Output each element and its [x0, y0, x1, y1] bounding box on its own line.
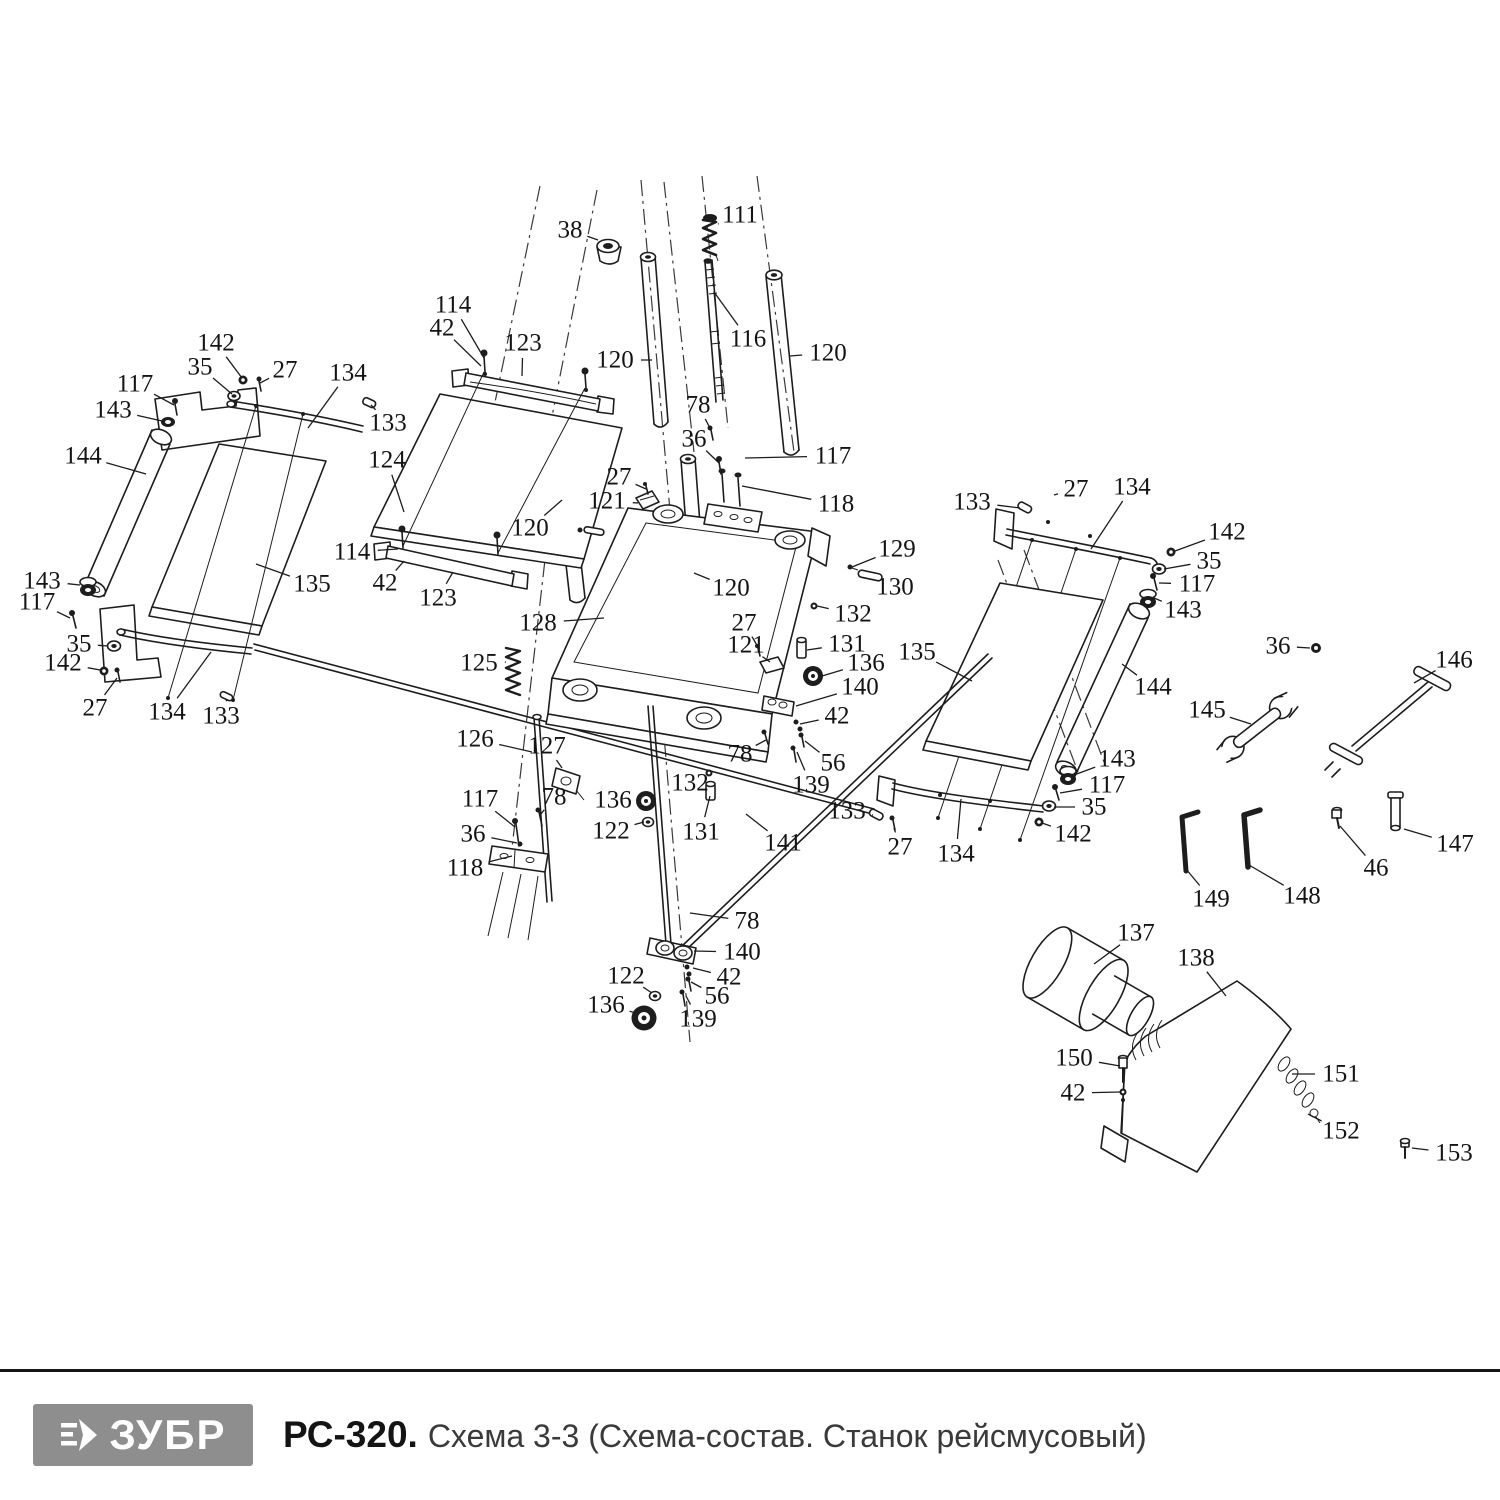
- part-label-126: 126: [456, 726, 494, 753]
- leader-line: [495, 811, 515, 827]
- part-label-27: 27: [273, 357, 298, 384]
- spring-125: [506, 648, 520, 695]
- part-label-121: 121: [727, 632, 765, 659]
- part-label-120: 120: [809, 340, 847, 367]
- leader-line: [1054, 494, 1058, 495]
- part-label-142: 142: [197, 330, 235, 357]
- leader-line: [106, 463, 146, 474]
- part-label-145: 145: [1188, 697, 1226, 724]
- part-label-134: 134: [148, 699, 186, 726]
- part-label-114: 114: [334, 539, 371, 566]
- leader-line: [522, 358, 523, 376]
- right-hardware-bottom: [1035, 767, 1077, 827]
- bracket-118-bottom: [488, 808, 548, 941]
- part-label-42: 42: [1061, 1080, 1086, 1107]
- part-label-135: 135: [293, 571, 331, 598]
- part-label-135: 135: [898, 639, 936, 666]
- part-label-27: 27: [607, 464, 632, 491]
- leader-line: [1099, 1062, 1120, 1066]
- part-label-36: 36: [461, 821, 486, 848]
- part-label-143: 143: [1098, 746, 1136, 773]
- leader-line: [461, 319, 484, 358]
- leader-line: [491, 838, 517, 843]
- part-label-143: 143: [1164, 597, 1202, 624]
- hex-key-149: [1182, 812, 1198, 871]
- part-label-149: 149: [1192, 886, 1230, 913]
- part-label-35: 35: [1082, 794, 1107, 821]
- part-label-120: 120: [511, 515, 549, 542]
- bearings-washers: [632, 791, 661, 1031]
- leader-line: [1060, 789, 1082, 793]
- leader-line: [694, 951, 716, 952]
- exploded-parts-diagram: 3811111442123120116120783611711812427121…: [0, 0, 1500, 1500]
- part-label-142: 142: [1208, 519, 1246, 546]
- part-label-117: 117: [1179, 571, 1216, 598]
- leader-line: [1207, 972, 1226, 996]
- part-label-78: 78: [686, 392, 711, 419]
- leader-line: [454, 340, 481, 366]
- part-label-120: 120: [596, 347, 634, 374]
- part-label-133: 133: [953, 489, 991, 516]
- part-label-146: 146: [1435, 647, 1473, 674]
- leader-line: [1249, 865, 1284, 885]
- part-label-151: 151: [1322, 1061, 1360, 1088]
- leader-line: [1230, 717, 1251, 724]
- leader-line: [852, 558, 876, 568]
- leader-line: [446, 572, 453, 584]
- leader-line: [213, 378, 232, 394]
- part-label-133: 133: [828, 798, 866, 825]
- leader-line: [226, 357, 242, 378]
- bracket-118-top: [704, 426, 762, 533]
- part-label-147: 147: [1436, 831, 1474, 858]
- leader-line: [57, 612, 70, 618]
- leader-line: [693, 968, 711, 973]
- column-120-a: [641, 253, 669, 428]
- leader-line: [68, 584, 80, 585]
- part-label-123: 123: [419, 585, 457, 612]
- leader-line: [742, 486, 811, 499]
- threaded-rod-116: [704, 258, 726, 402]
- part-label-142: 142: [1054, 821, 1092, 848]
- part-label-133: 133: [369, 410, 407, 437]
- leader-line: [797, 752, 805, 770]
- leader-line: [691, 982, 701, 988]
- leader-line: [790, 355, 802, 356]
- brand-name: ЗУБР: [109, 1411, 226, 1459]
- part-label-139: 139: [679, 1006, 717, 1033]
- leader-line: [226, 699, 227, 701]
- part-label-130: 130: [876, 574, 914, 601]
- leader-line: [98, 645, 108, 646]
- leader-line: [557, 760, 563, 768]
- part-label-139: 139: [792, 772, 830, 799]
- part-label-124: 124: [368, 447, 406, 474]
- part-label-128: 128: [519, 610, 557, 637]
- leader-line: [805, 741, 820, 752]
- leader-line: [308, 387, 338, 428]
- leader-line: [1412, 1148, 1429, 1150]
- part-label-153: 153: [1435, 1140, 1473, 1167]
- part-label-148: 148: [1283, 883, 1321, 910]
- leader-line: [88, 668, 100, 670]
- part-label-127: 127: [528, 733, 566, 760]
- part-label-134: 134: [329, 360, 367, 387]
- leader-line: [822, 670, 843, 676]
- handle-146: [1325, 665, 1452, 777]
- leader-line: [1308, 1114, 1322, 1121]
- leader-line: [1164, 564, 1191, 569]
- leader-line: [800, 720, 819, 724]
- part-label-118: 118: [447, 855, 484, 882]
- leader-line: [1186, 869, 1200, 886]
- part-label-78: 78: [542, 784, 567, 811]
- part-label-27: 27: [1064, 476, 1089, 503]
- leader-line: [1404, 829, 1432, 837]
- leader-line: [807, 648, 822, 650]
- part-label-141: 141: [764, 830, 802, 857]
- part-label-27: 27: [83, 695, 108, 722]
- leader-line: [499, 745, 532, 753]
- part-label-121: 121: [588, 488, 626, 515]
- leader-line: [587, 236, 598, 240]
- part-label-117: 117: [462, 786, 499, 813]
- part-label-78: 78: [735, 908, 760, 935]
- zubr-arrow-icon: [59, 1415, 101, 1455]
- part-label-143: 143: [94, 397, 132, 424]
- leader-line: [1340, 826, 1365, 856]
- part-label-152: 152: [1322, 1118, 1360, 1145]
- leader-line: [714, 292, 738, 325]
- part-label-123: 123: [504, 330, 542, 357]
- part-label-36: 36: [682, 426, 707, 453]
- part-label-134: 134: [1113, 474, 1151, 501]
- part-label-136: 136: [847, 650, 885, 677]
- part-label-136: 136: [587, 992, 625, 1019]
- leader-line: [1042, 823, 1051, 826]
- right-bar-134-bottom: [868, 776, 1044, 830]
- part-label-142: 142: [44, 650, 82, 677]
- leader-line: [997, 505, 1020, 508]
- part-label-144: 144: [1134, 674, 1172, 701]
- part-label-137: 137: [1117, 920, 1155, 947]
- leader-line: [817, 606, 829, 609]
- leader-line: [746, 814, 768, 831]
- part-label-118: 118: [818, 491, 855, 518]
- chain-151: [1276, 1055, 1317, 1109]
- part-label-27: 27: [888, 834, 913, 861]
- part-label-117: 117: [19, 589, 56, 616]
- part-label-122: 122: [607, 963, 645, 990]
- screw-46: [1332, 808, 1342, 829]
- part-label-129: 129: [878, 536, 916, 563]
- spring-111: [703, 214, 718, 261]
- footer-divider: [0, 1369, 1500, 1372]
- cover-138: [1101, 981, 1291, 1172]
- part-label-150: 150: [1055, 1045, 1093, 1072]
- part-label-42: 42: [430, 315, 455, 342]
- leader-line: [745, 457, 807, 458]
- part-label-134: 134: [937, 841, 975, 868]
- part-label-46: 46: [1364, 855, 1389, 882]
- part-label-42: 42: [373, 570, 398, 597]
- hex-key-148: [1244, 810, 1260, 867]
- part-label-111: 111: [722, 202, 758, 229]
- nut-36-right: [1311, 643, 1321, 653]
- part-label-140: 140: [841, 674, 879, 701]
- part-label-117: 117: [815, 443, 852, 470]
- leader-line: [1297, 647, 1310, 648]
- part-label-131: 131: [682, 819, 720, 846]
- part-label-140: 140: [723, 939, 761, 966]
- leader-line: [957, 799, 961, 839]
- part-label-120: 120: [712, 575, 750, 602]
- screw-153: [1401, 1139, 1410, 1159]
- right-table-135: [923, 583, 1103, 770]
- brand-logo: ЗУБР: [33, 1404, 253, 1466]
- part-label-36: 36: [1266, 633, 1291, 660]
- leader-line: [1092, 1092, 1120, 1093]
- schema-label: Схема 3-3 (Схема-состав. Станок рейсмусо…: [428, 1418, 1147, 1454]
- part-label-133: 133: [202, 703, 240, 730]
- part-label-35: 35: [188, 354, 213, 381]
- nut-38: [597, 240, 621, 265]
- part-label-117: 117: [117, 371, 154, 398]
- page: 3811111442123120116120783611711812427121…: [0, 0, 1500, 1500]
- part-label-144: 144: [64, 443, 102, 470]
- part-label-42: 42: [825, 703, 850, 730]
- part-label-132: 132: [671, 770, 709, 797]
- part-label-136: 136: [594, 787, 632, 814]
- leader-line: [177, 652, 211, 698]
- left-table-135: [149, 444, 326, 635]
- model-label: РС-320.: [283, 1414, 418, 1455]
- footer-title: РС-320.Схема 3-3 (Схема-состав. Станок р…: [283, 1414, 1147, 1456]
- part-label-138: 138: [1177, 945, 1215, 972]
- part-label-78: 78: [728, 741, 753, 768]
- leader-line: [1091, 501, 1123, 549]
- footer: ЗУБР РС-320.Схема 3-3 (Схема-состав. Ста…: [0, 1400, 1500, 1470]
- pin-147: [1388, 792, 1403, 831]
- part-label-116: 116: [730, 326, 767, 353]
- part-label-132: 132: [834, 601, 872, 628]
- part-label-122: 122: [592, 818, 630, 845]
- part-label-38: 38: [558, 217, 583, 244]
- part-label-125: 125: [460, 650, 498, 677]
